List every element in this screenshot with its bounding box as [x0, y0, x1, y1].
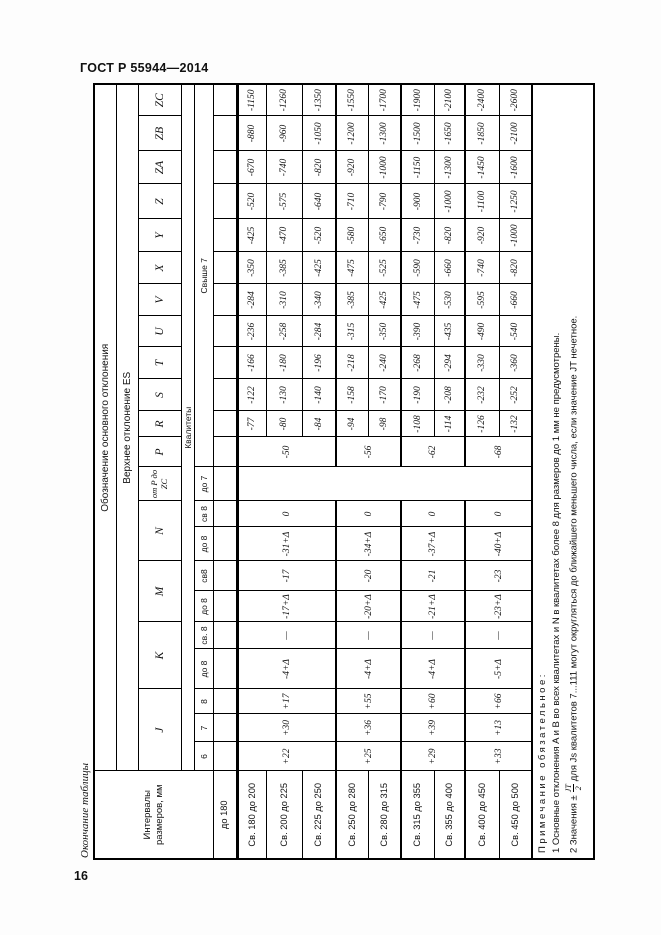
value-cell: -820 [434, 219, 465, 252]
header-row-es: Верхнее отклонение ES [116, 84, 138, 859]
value-cell: -580 [336, 219, 368, 252]
value-cell: -1850 [465, 116, 499, 151]
value-cell: +13 [465, 714, 532, 742]
empty-cell [213, 622, 237, 649]
value-cell: -350 [237, 252, 266, 284]
value-cell: -540 [499, 316, 532, 347]
letter-ZC: ZC [138, 84, 181, 116]
letter-ZA: ZA [138, 151, 181, 184]
note-2: 2 Значения ±JT2для Js квалитетов 7...111… [565, 89, 583, 853]
value-cell: -132 [499, 411, 532, 437]
value-cell: -820 [499, 252, 532, 284]
value-cell: -140 [302, 379, 336, 411]
empty-cell [213, 714, 237, 742]
empty-cell [213, 151, 237, 184]
interval-cell: Св. 315 до 355 [401, 771, 434, 859]
value-cell: +25 [336, 742, 401, 771]
value-cell: -284 [237, 284, 266, 316]
value-cell: -385 [266, 252, 302, 284]
interval-cell: Св. 180 до 200 [237, 771, 266, 859]
value-cell: -470 [266, 219, 302, 252]
value-cell: -252 [499, 379, 532, 411]
value-cell: -1260 [266, 84, 302, 116]
value-cell: — [237, 622, 336, 649]
grade-j7: 7 [194, 714, 213, 742]
value-cell: -5+Δ [465, 649, 532, 689]
value-cell: -23 [465, 561, 532, 591]
value-cell: 0 [401, 501, 465, 527]
value-cell: -232 [465, 379, 499, 411]
value-cell: -40+Δ [465, 527, 532, 561]
value-cell: -590 [401, 252, 434, 284]
value-cell: -56 [336, 437, 401, 467]
letter-U: U [138, 316, 181, 347]
value-cell: -218 [336, 347, 368, 379]
value-cell: — [401, 622, 465, 649]
value-cell: -1100 [465, 184, 499, 219]
interval-cell: Св. 200 до 225 [266, 771, 302, 859]
grade-j6: 6 [194, 742, 213, 771]
header-row-kvalitety: Квалитеты [181, 84, 194, 859]
value-cell: — [336, 622, 401, 649]
value-cell: -236 [237, 316, 266, 347]
jt2-fraction: JT2 [565, 784, 583, 792]
interval-cell: Св. 225 до 250 [302, 771, 336, 859]
value-cell: -315 [336, 316, 368, 347]
value-cell: -20+Δ [336, 591, 401, 622]
empty-cell [213, 284, 237, 316]
letter-N: N [138, 501, 181, 561]
value-cell: -740 [465, 252, 499, 284]
value-cell: 0 [336, 501, 401, 527]
value-cell: -34+Δ [336, 527, 401, 561]
letter-Y: Y [138, 219, 181, 252]
value-cell: -4+Δ [336, 649, 401, 689]
value-cell: -1700 [368, 84, 401, 116]
kvalitety-header: Квалитеты [181, 84, 194, 771]
value-cell: -21 [401, 561, 465, 591]
empty-cell [213, 689, 237, 714]
header-row-letters: J K M N от P до ZC P R S T U V X Y Z ZA … [138, 84, 181, 859]
value-cell: -130 [266, 379, 302, 411]
value-cell: -390 [401, 316, 434, 347]
grade-j8: 8 [194, 689, 213, 714]
page-number: 16 [74, 869, 88, 883]
value-cell: -21+Δ [401, 591, 465, 622]
value-cell: -425 [368, 284, 401, 316]
value-cell: -17 [237, 561, 336, 591]
value-cell: -1200 [336, 116, 368, 151]
value-cell: -94 [336, 411, 368, 437]
letter-P-to-ZC: от P до ZC [138, 467, 181, 501]
empty-cell [213, 219, 237, 252]
rotated-table-container: Окончание таблицы Интервалы размеров, мм… [79, 85, 595, 860]
value-cell: -2400 [465, 84, 499, 116]
designation-header: Обозначение основного отклонения [94, 84, 116, 771]
value-cell: -31+Δ [237, 527, 336, 561]
letter-P: P [138, 437, 181, 467]
value-cell: -1650 [434, 116, 465, 151]
value-cell: +33 [465, 742, 532, 771]
value-cell: -435 [434, 316, 465, 347]
value-cell: -258 [266, 316, 302, 347]
value-cell: -170 [368, 379, 401, 411]
letter-ZB: ZB [138, 116, 181, 151]
value-cell: -475 [336, 252, 368, 284]
row-notes: Примечание обязательное: 1 Основные откл… [532, 84, 594, 859]
value-cell: -166 [237, 347, 266, 379]
value-cell: -240 [368, 347, 401, 379]
empty-cell [213, 116, 237, 151]
value-cell: -208 [434, 379, 465, 411]
empty-cell [213, 742, 237, 771]
value-cell: -108 [401, 411, 434, 437]
value-cell: 0 [465, 501, 532, 527]
value-cell: -900 [401, 184, 434, 219]
grade-pzc-do7: до 7 [194, 467, 213, 501]
grade-n-sv8: св 8 [194, 501, 213, 527]
value-cell: -1000 [434, 184, 465, 219]
empty-cell [213, 467, 237, 501]
value-cell: +55 [336, 689, 401, 714]
grade-n-do8: до 8 [194, 527, 213, 561]
value-cell: -670 [237, 151, 266, 184]
value-cell: -730 [401, 219, 434, 252]
value-cell: +17 [237, 689, 336, 714]
table-caption: Окончание таблицы [79, 85, 93, 860]
letter-T: T [138, 347, 181, 379]
value-cell: -660 [499, 284, 532, 316]
letter-M: M [138, 561, 181, 622]
value-cell: -1150 [401, 151, 434, 184]
interval-cell: Св. 250 до 280 [336, 771, 368, 859]
value-cell: -520 [237, 184, 266, 219]
value-cell: -880 [237, 116, 266, 151]
value-cell: -20 [336, 561, 401, 591]
value-cell: -180 [266, 347, 302, 379]
value-cell: -425 [237, 219, 266, 252]
value-cell: -122 [237, 379, 266, 411]
grade-m-sv8: св8 [194, 561, 213, 591]
value-cell: -23+Δ [465, 591, 532, 622]
value-cell: -350 [368, 316, 401, 347]
value-cell: -4+Δ [401, 649, 465, 689]
value-cell: -530 [434, 284, 465, 316]
empty-cell [237, 467, 532, 501]
value-cell: -196 [302, 347, 336, 379]
fraction-denominator: 2 [573, 784, 583, 792]
value-cell: +39 [401, 714, 465, 742]
note-2-prefix: 2 Значения ± [569, 795, 580, 853]
interval-cell: Св. 450 до 500 [499, 771, 532, 859]
value-cell: -1300 [434, 151, 465, 184]
value-cell: -330 [465, 347, 499, 379]
notes-title: Примечание обязательное: [537, 89, 549, 853]
letter-R: R [138, 411, 181, 437]
upper-deviation-header: Верхнее отклонение ES [116, 84, 138, 771]
value-cell: -360 [499, 347, 532, 379]
value-cell: -575 [266, 184, 302, 219]
interval-cell: Св. 355 до 400 [434, 771, 465, 859]
empty-cell [213, 379, 237, 411]
value-cell: -158 [336, 379, 368, 411]
value-cell: -1000 [368, 151, 401, 184]
value-cell: -37+Δ [401, 527, 465, 561]
interval-cell: Св. 280 до 315 [368, 771, 401, 859]
empty-cell [213, 591, 237, 622]
value-cell: +36 [336, 714, 401, 742]
value-cell: -710 [336, 184, 368, 219]
value-cell: -520 [302, 219, 336, 252]
value-cell: 0 [237, 501, 336, 527]
value-cell: -920 [465, 219, 499, 252]
value-cell: -650 [368, 219, 401, 252]
empty-cell [213, 527, 237, 561]
value-cell: -1250 [499, 184, 532, 219]
empty-cell [213, 501, 237, 527]
grade-k-sv8: св. 8 [194, 622, 213, 649]
note-2-suffix: для Js квалитетов 7...111 могут округлят… [569, 316, 580, 782]
value-cell: -340 [302, 284, 336, 316]
value-cell: -2100 [499, 116, 532, 151]
value-cell: -126 [465, 411, 499, 437]
value-cell: -1000 [499, 219, 532, 252]
empty-cell [213, 184, 237, 219]
value-cell: -294 [434, 347, 465, 379]
value-cell: -1900 [401, 84, 434, 116]
value-cell: -310 [266, 284, 302, 316]
value-cell: -820 [302, 151, 336, 184]
value-cell: -98 [368, 411, 401, 437]
value-cell: -1600 [499, 151, 532, 184]
value-cell: -17+Δ [237, 591, 336, 622]
value-cell: -284 [302, 316, 336, 347]
row-do-180: до 180 [213, 84, 237, 859]
value-cell: -190 [401, 379, 434, 411]
letter-K: K [138, 622, 181, 689]
letter-X: X [138, 252, 181, 284]
grade-m-do8: до 8 [194, 591, 213, 622]
letter-V: V [138, 284, 181, 316]
row-180-200: Св. 180 до 200 +22 +30 +17 -4+Δ — -17+Δ … [237, 84, 266, 859]
empty-cell [213, 561, 237, 591]
value-cell: -1050 [302, 116, 336, 151]
letter-Z: Z [138, 184, 181, 219]
value-cell: +66 [465, 689, 532, 714]
value-cell: -4+Δ [237, 649, 336, 689]
value-cell: +29 [401, 742, 465, 771]
value-cell: -68 [465, 437, 532, 467]
deviations-table: Интервалы размеров, мм Обозначение основ… [93, 83, 595, 860]
empty-cell [213, 649, 237, 689]
value-cell: -660 [434, 252, 465, 284]
letter-S: S [138, 379, 181, 411]
empty-cell [213, 347, 237, 379]
empty-cell [213, 252, 237, 284]
value-cell: -80 [266, 411, 302, 437]
empty-cell [213, 437, 237, 467]
grade-k-do8: до 8 [194, 649, 213, 689]
notes-block: Примечание обязательное: 1 Основные откл… [532, 84, 594, 859]
note-1: 1 Основные отклонения A и B во всех квал… [551, 89, 563, 853]
value-cell: -50 [237, 437, 336, 467]
value-cell: -84 [302, 411, 336, 437]
value-cell: -268 [401, 347, 434, 379]
fraction-numerator: JT [564, 784, 573, 792]
value-cell: +60 [401, 689, 465, 714]
value-cell: -920 [336, 151, 368, 184]
value-cell: -425 [302, 252, 336, 284]
value-cell: -790 [368, 184, 401, 219]
value-cell: -475 [401, 284, 434, 316]
value-cell: -1450 [465, 151, 499, 184]
empty-cell [213, 84, 237, 116]
intervals-header: Интервалы размеров, мм [94, 771, 213, 859]
value-cell: -1550 [336, 84, 368, 116]
value-cell: -1300 [368, 116, 401, 151]
value-cell: -62 [401, 437, 465, 467]
value-cell: -960 [266, 116, 302, 151]
empty-cell [213, 316, 237, 347]
empty-cell [213, 411, 237, 437]
value-cell: -490 [465, 316, 499, 347]
value-cell: -740 [266, 151, 302, 184]
value-cell: -2600 [499, 84, 532, 116]
standard-number: ГОСТ Р 55944—2014 [80, 61, 208, 75]
value-cell: — [465, 622, 532, 649]
value-cell: -77 [237, 411, 266, 437]
value-cell: +30 [237, 714, 336, 742]
value-cell: -1150 [237, 84, 266, 116]
value-cell: -1500 [401, 116, 434, 151]
grade-above7: Свыше 7 [194, 84, 213, 467]
value-cell: -2100 [434, 84, 465, 116]
value-cell: +22 [237, 742, 336, 771]
letter-J: J [138, 689, 181, 771]
value-cell: -525 [368, 252, 401, 284]
value-cell: -385 [336, 284, 368, 316]
value-cell: -1350 [302, 84, 336, 116]
value-cell: -595 [465, 284, 499, 316]
interval-cell: Св. 400 до 450 [465, 771, 499, 859]
header-row-designation: Интервалы размеров, мм Обозначение основ… [94, 84, 116, 859]
value-cell: -640 [302, 184, 336, 219]
header-row-grades: 6 7 8 до 8 св. 8 до 8 св8 до 8 св 8 до 7… [194, 84, 213, 859]
value-cell: -114 [434, 411, 465, 437]
interval-cell: до 180 [213, 771, 237, 859]
